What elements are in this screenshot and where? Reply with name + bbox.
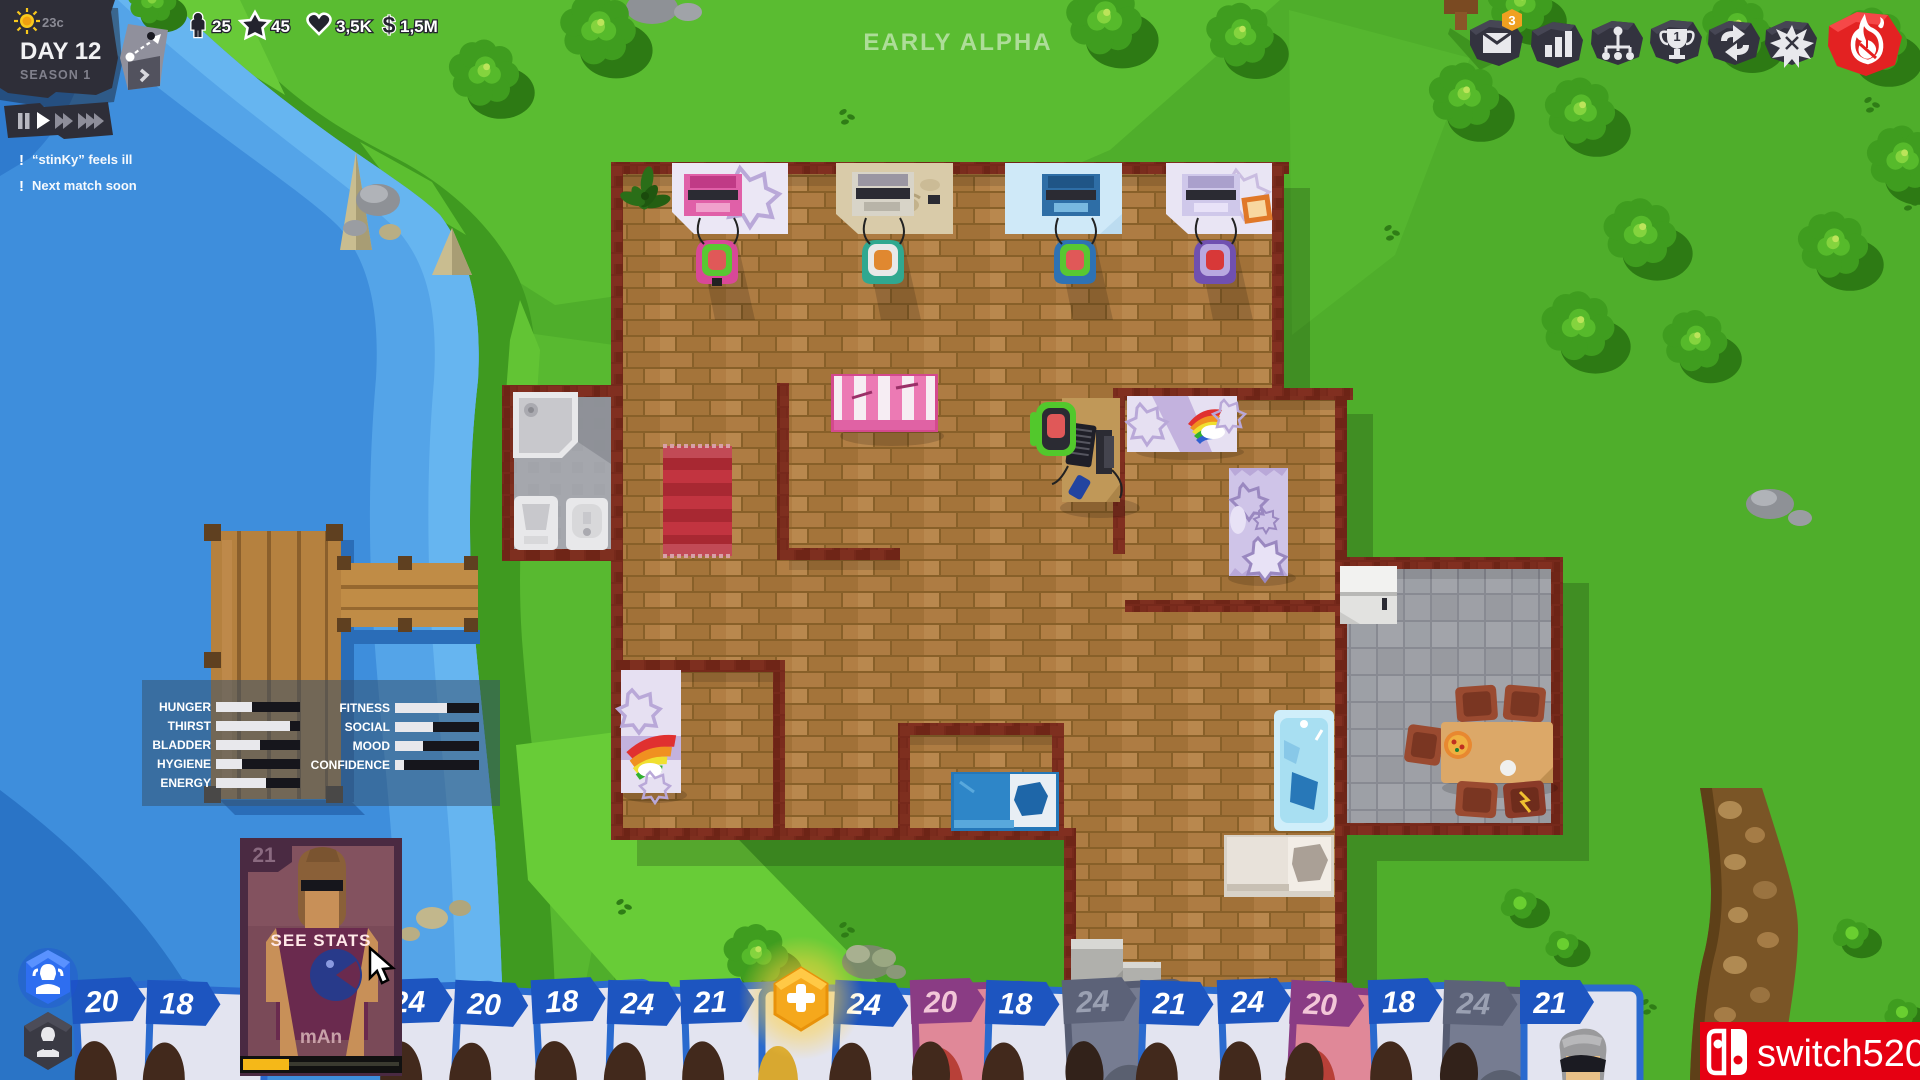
svg-text:THIRST: THIRST (168, 719, 212, 733)
svg-text:FITNESS: FITNESS (339, 701, 390, 715)
svg-text:18: 18 (1381, 986, 1416, 1020)
svg-text:24: 24 (619, 987, 655, 1021)
svg-text:DAY 12: DAY 12 (20, 38, 101, 65)
svg-text:mAn: mAn (300, 1027, 342, 1048)
svg-text:24: 24 (1455, 987, 1491, 1021)
svg-text:20: 20 (922, 986, 958, 1020)
svg-text:21: 21 (692, 986, 728, 1020)
svg-text:$: $ (383, 12, 396, 38)
svg-text:!: ! (19, 152, 24, 169)
svg-text:SEE STATS: SEE STATS (271, 931, 372, 950)
svg-text:switch520: switch520 (1757, 1033, 1920, 1075)
svg-text:24: 24 (1074, 985, 1110, 1020)
svg-text:SEASON 1: SEASON 1 (20, 68, 91, 82)
svg-text:18: 18 (159, 987, 194, 1021)
svg-text:HYGIENE: HYGIENE (157, 757, 211, 771)
svg-text:MOOD: MOOD (353, 739, 391, 753)
svg-text:“stinKy” feels ill: “stinKy” feels ill (32, 152, 132, 167)
svg-text:EARLY ALPHA: EARLY ALPHA (863, 29, 1052, 56)
svg-text:SOCIAL: SOCIAL (345, 720, 390, 734)
svg-text:21: 21 (1151, 987, 1187, 1021)
svg-text:45: 45 (271, 17, 290, 36)
svg-text:Next match soon: Next match soon (32, 178, 137, 193)
svg-text:21: 21 (1532, 987, 1566, 1020)
svg-text:24: 24 (1229, 986, 1265, 1020)
svg-text:25: 25 (212, 17, 231, 36)
svg-text:20: 20 (1302, 987, 1338, 1022)
svg-text:20: 20 (83, 985, 119, 1020)
svg-text:20: 20 (466, 987, 502, 1022)
svg-text:ENERGY: ENERGY (160, 776, 211, 790)
svg-text:BLADDER: BLADDER (152, 738, 211, 752)
svg-text:CONFIDENCE: CONFIDENCE (311, 758, 390, 772)
svg-text:23c: 23c (42, 15, 64, 30)
svg-text:1,5M: 1,5M (400, 17, 438, 36)
svg-text:3,5K: 3,5K (336, 17, 373, 36)
svg-text:21: 21 (252, 844, 276, 867)
svg-text:3: 3 (1508, 13, 1515, 28)
svg-text:18: 18 (544, 985, 579, 1020)
svg-text:!: ! (19, 178, 24, 195)
svg-text:18: 18 (998, 987, 1033, 1021)
svg-text:1: 1 (1673, 29, 1680, 44)
svg-text:HUNGER: HUNGER (159, 700, 211, 714)
